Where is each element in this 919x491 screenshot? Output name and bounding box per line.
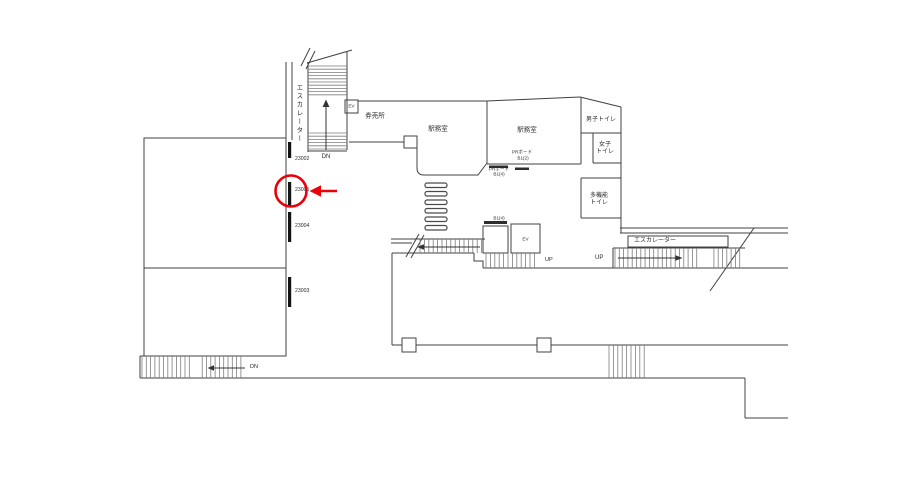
stairs-hatch-top-lower (308, 133, 347, 149)
elevator-center-label: EV (522, 237, 528, 242)
direction-arrows (208, 100, 683, 371)
ticket-gates (425, 183, 447, 230)
stairs-hatch-bottom-left (142, 356, 241, 378)
pr-board-bars (484, 166, 529, 225)
multi-toilet-label-1: 多機能 (590, 193, 608, 199)
pr-board-box (483, 226, 508, 253)
multi-toilet-label-2: トイレ (590, 200, 608, 206)
pr-board-b12-code: B1(2) (517, 156, 528, 161)
dn-top-label: DN (322, 154, 331, 160)
pr-board-b14-code: B1(4) (493, 172, 504, 177)
elevator-top-label: EV (348, 104, 354, 109)
sign-label-23003[interactable]: 23003 (295, 289, 309, 294)
stairs-hatch-top (308, 66, 347, 95)
sign-label-23004[interactable]: 23004 (295, 224, 309, 229)
sign-bar-23002 (288, 142, 291, 158)
pr-board-b14-tag: B1(4) (493, 216, 504, 221)
sign-label-23005[interactable]: 23005 (295, 188, 309, 193)
floorplan-drawing (0, 0, 919, 491)
walls-lines (140, 48, 788, 418)
mens-toilet-label: 男子トイレ (586, 116, 616, 122)
womens-toilet-label-1: 女子 (599, 141, 611, 147)
escalator-top-label: エスカレーター (294, 84, 301, 144)
sign-bar-23003 (288, 277, 291, 307)
dn-bottom-label: DN (250, 365, 258, 371)
station-floorplan: エスカレーター DN EV 券売所 駅務室 駅務室 PRボード B1(2) PR… (0, 0, 919, 491)
station-office-left-label: 駅務室 (428, 127, 448, 134)
sign-label-23002[interactable]: 23002 (295, 157, 309, 162)
sign-bar-23005 (288, 182, 291, 207)
sign-bars (288, 142, 291, 307)
ticket-office-label: 券売所 (365, 114, 385, 121)
station-office-right-label: 駅務室 (517, 128, 537, 135)
stairs-hatch-center-up (486, 253, 534, 268)
escalator-right-label: エスカレーター (634, 238, 676, 244)
up-center-label: UP (545, 258, 553, 264)
womens-toilet-label-2: トイレ (596, 148, 614, 154)
stairs-hatch-center-left (420, 239, 482, 253)
up-right-label: UP (595, 255, 603, 261)
sign-bar-23004 (288, 212, 291, 242)
stairs-hatch-bottom-right (609, 345, 644, 378)
